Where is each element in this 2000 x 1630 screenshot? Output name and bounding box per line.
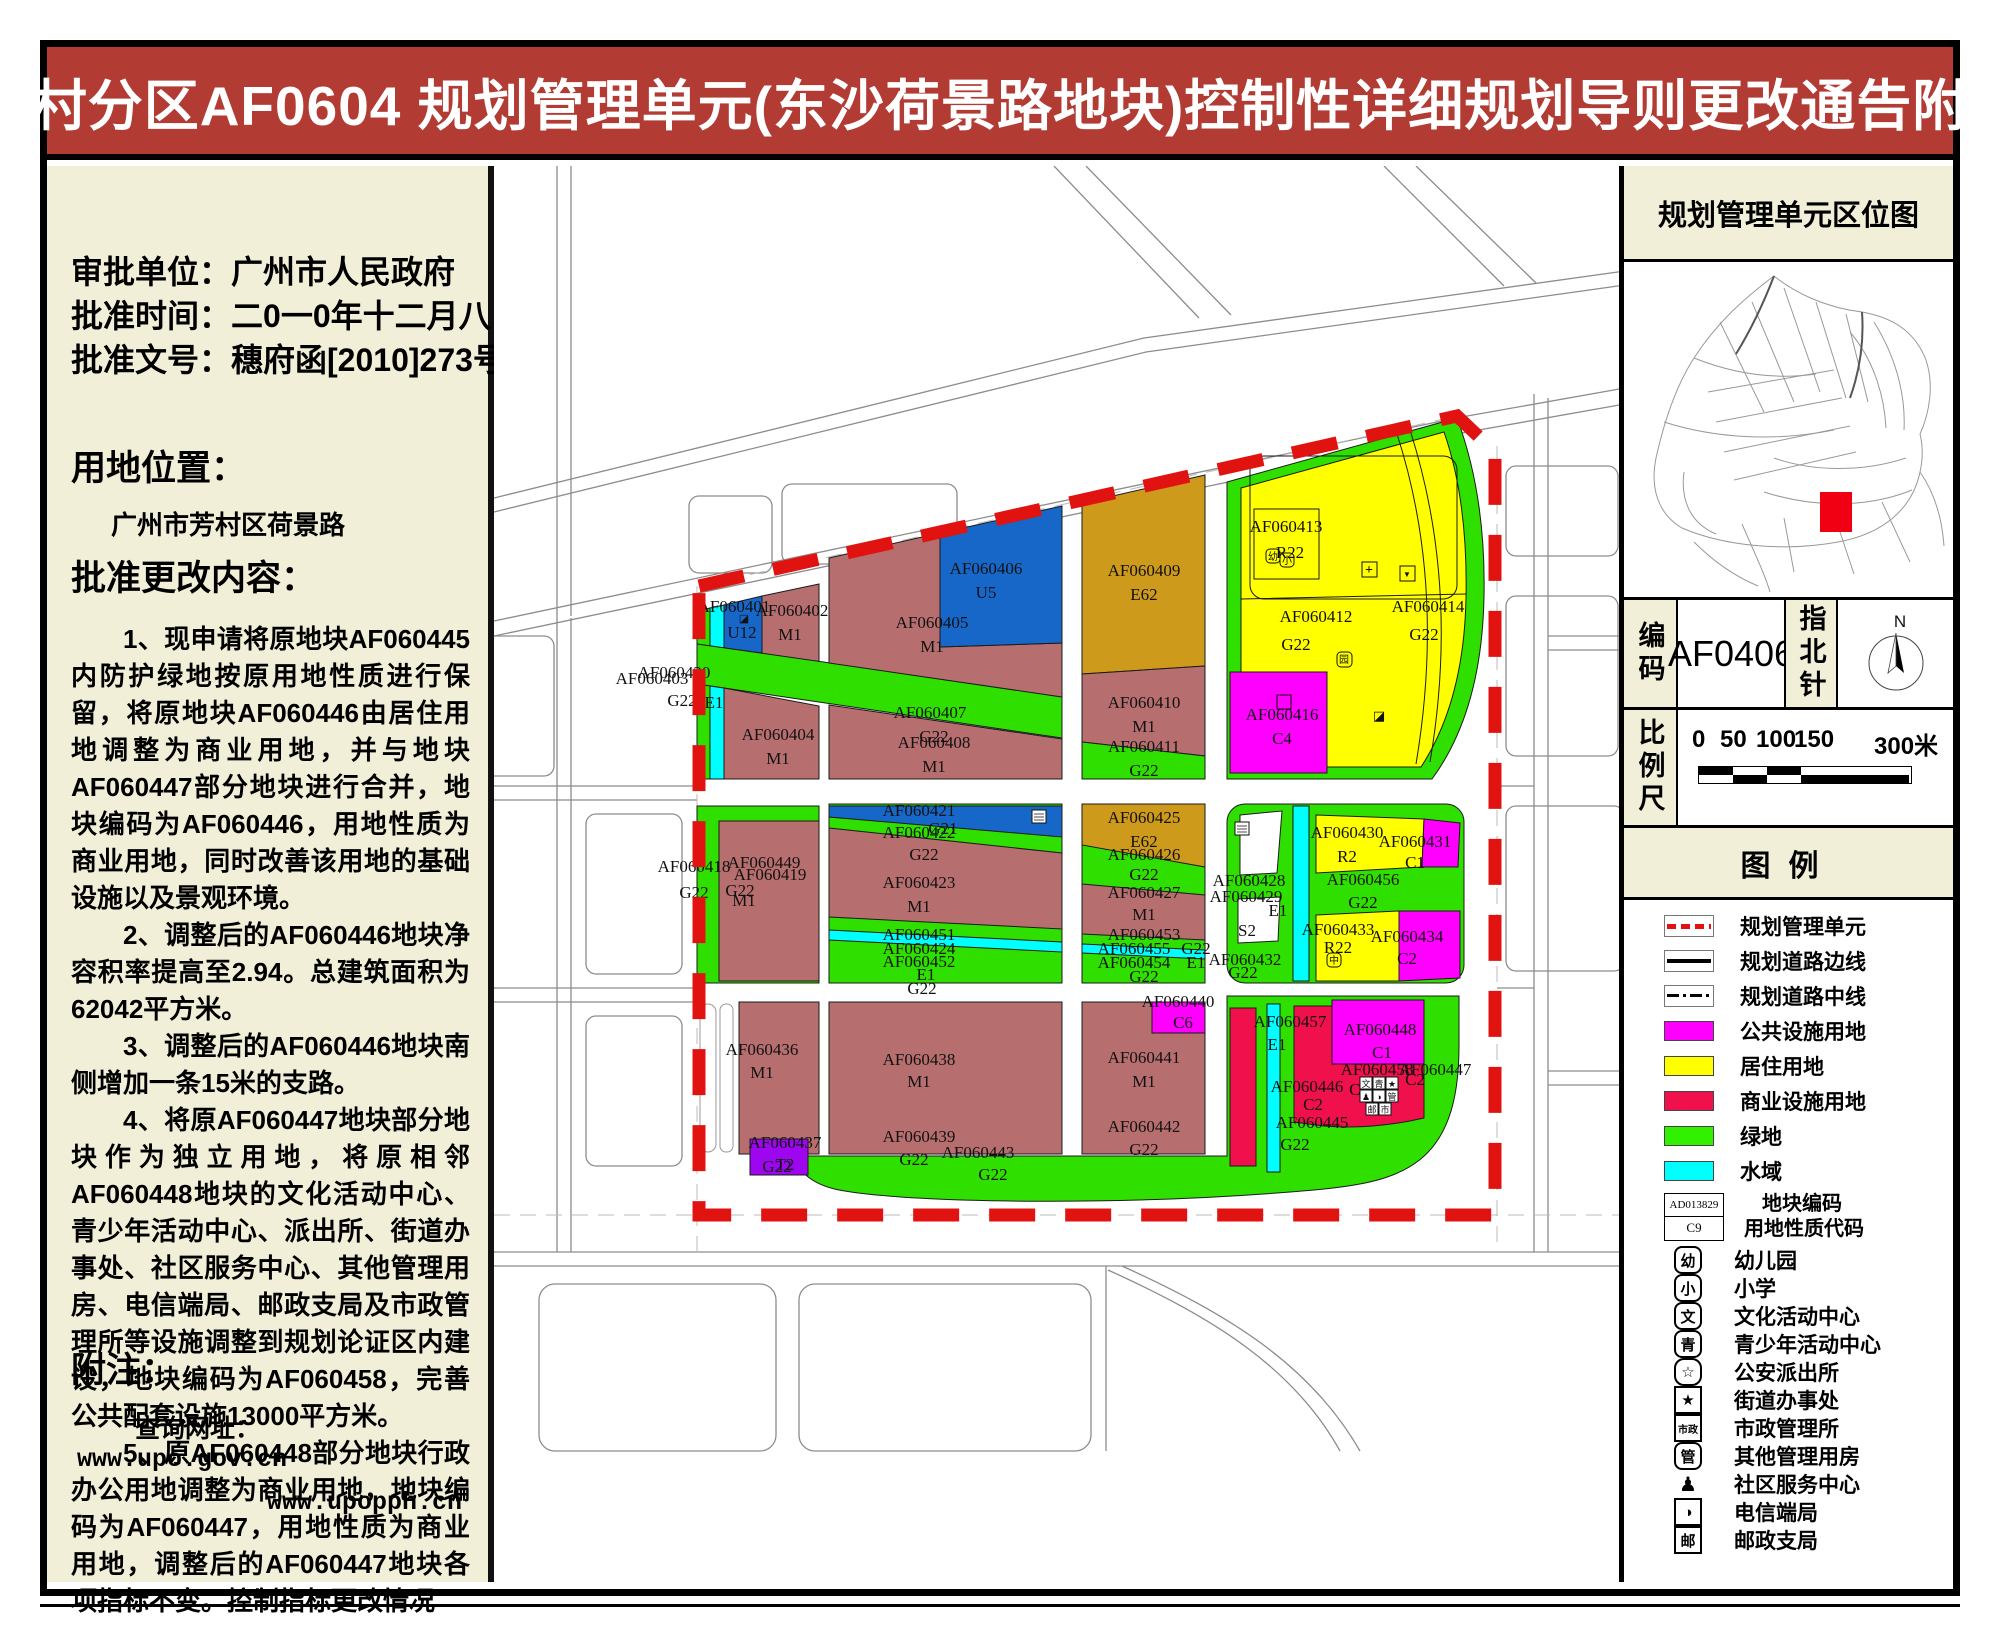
parcel-label: M1	[750, 1063, 774, 1082]
sheet-bottom-rule	[40, 1604, 1960, 1607]
parcel-label: G22	[1280, 1135, 1309, 1154]
parcel-label: AF060411	[1108, 737, 1180, 756]
legend-item: 规划管理单元	[1664, 908, 1953, 943]
legend-item-label: 电信端局	[1734, 1497, 1818, 1527]
query-url[interactable]: www.upo.gov.cn	[77, 1445, 287, 1474]
note-title: 附注：	[71, 1342, 470, 1393]
approval-label: 批准时间：	[71, 298, 231, 334]
facility-legend-icon: 邮	[1674, 1526, 1702, 1554]
legend-item-label: 小学	[1734, 1273, 1776, 1303]
legend-item-label: 其他管理用房	[1734, 1441, 1860, 1471]
parcel-label: AF060421	[883, 801, 956, 820]
parcel-label: AF060440	[1142, 992, 1215, 1011]
facility-legend-icon: 管	[1674, 1442, 1702, 1470]
legend-item: 规划道路边线	[1664, 943, 1953, 978]
parcel-label: AF060408	[898, 733, 971, 752]
parcel-label: M1	[922, 757, 946, 776]
info-panel: 审批单位：广州市人民政府 批准时间：二0一0年十二月八日 批准文号：穗府函[20…	[47, 166, 494, 1582]
legend-item-label: 地块编码	[1762, 1192, 1864, 1217]
scale-bar: 0 50 100 150 300米	[1678, 710, 1953, 825]
youth-center-icon: 中	[1327, 953, 1341, 967]
parcel-label: G22	[1129, 967, 1158, 986]
primary-school-icon: 小	[1280, 553, 1294, 567]
svg-text:小: 小	[1282, 555, 1292, 567]
scale-tick: 300米	[1874, 726, 1938, 761]
legend-line-sample	[1664, 915, 1714, 937]
note-block: 附注： 查询网址：www.upo.gov.cn www.upopph.cn	[71, 1342, 470, 1517]
legend-item: 商业设施用地	[1664, 1083, 1953, 1118]
parcel-label: M1	[1132, 717, 1156, 736]
legend-item: 规划道路中线	[1664, 978, 1953, 1013]
legend-item: 公共设施用地	[1664, 1013, 1953, 1048]
locator-highlight	[1820, 492, 1852, 532]
legend-item: ★ 街道办事处	[1664, 1386, 1953, 1414]
legend-item-label: 商业设施用地	[1740, 1086, 1866, 1116]
parcel-label: G22	[1281, 635, 1310, 654]
sheet-frame: 芳村分区AF0604 规划管理单元(东沙荷景路地块)控制性详细规划导则更改通告附…	[40, 40, 1960, 1596]
legend-item: 绿地	[1664, 1118, 1953, 1153]
parcel-label: AF060457	[1254, 1012, 1327, 1031]
parcel-label: AF060403	[616, 669, 689, 688]
query-url[interactable]: www.upopph.cn	[267, 1488, 462, 1517]
facility-legend-icon: ★	[1674, 1386, 1702, 1414]
parcel-label: AF060433	[1302, 920, 1375, 939]
legend-item-label: 公共设施用地	[1740, 1016, 1866, 1046]
title-bar: 芳村分区AF0604 规划管理单元(东沙荷景路地块)控制性详细规划导则更改通告附…	[47, 47, 1953, 160]
legend-item: 居住用地	[1664, 1048, 1953, 1083]
legend-title: 图例	[1624, 828, 1953, 900]
legend-title-text: 图例	[1741, 841, 1837, 885]
parcel-label: S2	[1238, 921, 1256, 940]
legend-color-swatch	[1664, 1161, 1714, 1181]
locator-title-text: 规划管理单元区位图	[1658, 192, 1919, 234]
parcel-label: G22	[1129, 1140, 1158, 1159]
parcel-label: AF060416	[1246, 705, 1319, 724]
parcel-label: G22	[909, 845, 938, 864]
parcel-label: C1	[1405, 853, 1425, 872]
parcel-label: AF060409	[1108, 561, 1181, 580]
parcel-label: AF060407	[894, 703, 967, 722]
parcel-label: G22	[1348, 893, 1377, 912]
parcel-label: M1	[778, 625, 802, 644]
legend-color-swatch	[1664, 1126, 1714, 1146]
facility-legend-icon: 幼	[1674, 1246, 1702, 1274]
parcel-label: C2	[1405, 1070, 1425, 1089]
parcel-label: AF060412	[1280, 607, 1353, 626]
parcel-label: E1	[1268, 1035, 1287, 1054]
parcel-label: AF060446	[1271, 1077, 1344, 1096]
legend-item: 青 青少年活动中心	[1664, 1330, 1953, 1358]
parcel-label: AF060425	[1108, 808, 1181, 827]
parcel-label: G22	[667, 691, 696, 710]
url-label: 查询网址：	[135, 1415, 260, 1443]
parcel-label: M1	[1132, 905, 1156, 924]
parcel-code-labels: 地块编码 用地性质代码	[1744, 1192, 1864, 1242]
legend-item-label: 文化活动中心	[1734, 1301, 1860, 1331]
parcel-label: G22	[907, 979, 936, 998]
legend-item: ☆ 公安派出所	[1664, 1358, 1953, 1386]
parcel-label: AF060410	[1108, 693, 1181, 712]
legend-item-label: 水域	[1740, 1156, 1782, 1186]
legend-item: 邮 邮政支局	[1664, 1526, 1953, 1554]
side-panel: 规划管理单元区位图	[1619, 166, 1953, 1582]
approval-label: 审批单位：	[71, 254, 231, 290]
legend: 规划管理单元 规划道路边线 规划道路中线	[1624, 900, 1953, 1554]
parcel-label: G22	[899, 1150, 928, 1169]
parcel-label: G22	[1129, 865, 1158, 884]
north-arrow-icon: N	[1858, 611, 1934, 697]
legend-item-label: 青少年活动中心	[1734, 1329, 1881, 1359]
scale-tick: 150	[1794, 726, 1834, 754]
parcel-label: AF060406	[950, 559, 1023, 578]
facility-legend-icon: ◑	[1674, 1498, 1702, 1526]
svg-text:邮: 邮	[1367, 1104, 1376, 1115]
parcel-label: C2	[1303, 1095, 1323, 1114]
legend-line-sample	[1664, 950, 1714, 972]
legend-color-swatch	[1664, 1091, 1714, 1111]
scale-tick: 50	[1720, 726, 1747, 754]
legend-item: 文 文化活动中心	[1664, 1302, 1953, 1330]
parcel-label: AF060437	[749, 1133, 822, 1152]
facility-legend-icon: 文	[1674, 1302, 1702, 1330]
code-row: 编码 AF0406 指北针 N	[1624, 600, 1953, 710]
svg-text:文: 文	[1361, 1078, 1370, 1089]
parcel-label: AF060434	[1371, 927, 1444, 946]
parcel-label: AF060441	[1108, 1048, 1181, 1067]
north-letter: N	[1893, 612, 1905, 631]
svg-text:◑: ◑	[1376, 1092, 1381, 1102]
parcel-label: G22	[1409, 625, 1438, 644]
legend-item-label: 邮政支局	[1734, 1525, 1818, 1555]
parcel-label: E1	[705, 693, 724, 712]
parcel-label: AF060426	[1108, 845, 1181, 864]
facility-legend-icon: ☆	[1674, 1358, 1702, 1386]
svg-text:+: +	[1365, 563, 1373, 578]
svg-text:幼: 幼	[1268, 550, 1278, 563]
parcel-code-sample: AD013829 C9	[1664, 1193, 1724, 1241]
parcel-label: C4	[1272, 729, 1292, 748]
parcel-label: AF060405	[896, 613, 969, 632]
svg-text:市: 市	[1380, 1104, 1389, 1115]
parcel-code-sample-use: C9	[1665, 1217, 1723, 1239]
unit-code: AF0406	[1678, 600, 1786, 707]
parcel-label: C6	[1173, 1013, 1193, 1032]
parcel-code-sample-code: AD013829	[1665, 1194, 1723, 1217]
parcel-label: AF060445	[1276, 1113, 1349, 1132]
parcel-label: G22	[1129, 761, 1158, 780]
legend-item: 水域	[1664, 1153, 1953, 1188]
parcel-corner-icon: ◪	[739, 613, 749, 625]
parcel-label: AF060436	[726, 1040, 799, 1059]
legend-item-label: 公安派出所	[1734, 1357, 1839, 1387]
svg-text:♟: ♟	[1362, 1092, 1370, 1102]
zoning-map-svg: AF060420G22 AF060403E1 AF060401U12 AF060…	[494, 166, 1625, 1582]
parcel-label: G21	[928, 819, 957, 838]
locator-map	[1624, 262, 1953, 600]
scale-tick: 100	[1756, 726, 1796, 754]
parcel-label: T2	[776, 1155, 795, 1174]
parcel-label: G22	[978, 1165, 1007, 1184]
parcel-label: AF060456	[1327, 870, 1400, 889]
parcel-label: AF060448	[1344, 1020, 1417, 1039]
legend-item-label: 社区服务中心	[1734, 1469, 1860, 1499]
parcel-label: M1	[920, 637, 944, 656]
parcel-label: E62	[1130, 585, 1157, 604]
parcel-label: AF060430	[1311, 823, 1384, 842]
legend-parcel-code: AD013829 C9 地块编码 用地性质代码	[1664, 1188, 1953, 1246]
approval-value: 二0一0年十二月八日	[231, 298, 523, 334]
parcel-label: AF060431	[1379, 832, 1452, 851]
svg-text:中: 中	[1329, 954, 1339, 967]
legend-item: 管 其他管理用房	[1664, 1442, 1953, 1470]
paragraph: 2、调整后的AF060446地块净容积率提高至2.94。总建筑面积为62042平…	[71, 917, 470, 1028]
parcel-label: AF060438	[883, 1050, 956, 1069]
approval-value: 穗府函[2010]273号	[231, 342, 505, 378]
svg-text:◪: ◪	[1373, 708, 1385, 723]
legend-color-swatch	[1664, 1056, 1714, 1076]
parcel-label: M1	[732, 891, 756, 910]
legend-item-label: 用地性质代码	[1744, 1217, 1864, 1242]
approval-value: 广州市人民政府	[231, 254, 455, 290]
svg-text:园: 园	[1339, 654, 1349, 666]
legend-icon-items: 幼 幼儿园 小 小学 文 文化活动中心 青 青	[1664, 1246, 1953, 1554]
legend-item-label: 街道办事处	[1734, 1385, 1839, 1415]
parcel-label: AF060419	[734, 865, 807, 884]
legend-item-label: 规划道路中线	[1740, 981, 1866, 1011]
legend-item-label: 市政管理所	[1734, 1413, 1839, 1443]
parcel-label: M1	[766, 749, 790, 768]
legend-item: ♟ 社区服务中心	[1664, 1470, 1953, 1498]
svg-text:★: ★	[1388, 1079, 1396, 1089]
parcel-label: U5	[976, 583, 997, 602]
facility-legend-icon: 市政	[1674, 1414, 1702, 1442]
legend-line-sample	[1664, 985, 1714, 1007]
scale-bar-graphic	[1698, 766, 1912, 784]
parcel-label: E1	[1187, 953, 1206, 972]
legend-item: 幼 幼儿园	[1664, 1246, 1953, 1274]
parcel-corner-icon: ◪	[1373, 708, 1385, 723]
legend-line-items: 规划管理单元 规划道路边线 规划道路中线	[1664, 908, 1953, 1013]
svg-text:▼: ▼	[1403, 570, 1411, 579]
legend-item: 市政 市政管理所	[1664, 1414, 1953, 1442]
facility-legend-icon: 小	[1674, 1274, 1702, 1302]
parcel-label: M1	[907, 1072, 931, 1091]
parcel-label: AF060413	[1250, 517, 1323, 536]
legend-item-label: 幼儿园	[1734, 1245, 1797, 1275]
parcel-label: AF060414	[1392, 597, 1465, 616]
building-grid-icon	[1235, 822, 1249, 835]
legend-color-swatch	[1664, 1021, 1714, 1041]
content-title: 批准更改内容：	[71, 550, 470, 601]
legend-item-label: 规划道路边线	[1740, 946, 1866, 976]
location-value: 广州市芳村区荷景路	[111, 505, 470, 542]
location-title: 用地位置：	[71, 440, 470, 491]
location-block: 用地位置： 广州市芳村区荷景路	[71, 440, 470, 542]
parcel-label: AF060402	[756, 601, 829, 620]
svg-text:青: 青	[1374, 1078, 1383, 1089]
parcel-label: E1	[1269, 901, 1288, 920]
parcel-label: C2	[1397, 949, 1417, 968]
compass-label: 指北针	[1786, 600, 1838, 707]
page: 芳村分区AF0604 规划管理单元(东沙荷景路地块)控制性详细规划导则更改通告附…	[0, 0, 2000, 1630]
facility-legend-icon: ♟	[1674, 1470, 1702, 1498]
legend-item-label: 规划管理单元	[1740, 911, 1866, 941]
scale-row: 比例尺 0 50 100 150 300米	[1624, 710, 1953, 828]
legend-item: 小 小学	[1664, 1274, 1953, 1302]
zoning-map: AF060420G22 AF060403E1 AF060401U12 AF060…	[494, 166, 1625, 1582]
locator-map-svg	[1624, 262, 1953, 597]
approval-label: 批准文号：	[71, 342, 231, 378]
parcel-label: U12	[727, 623, 756, 642]
locator-title: 规划管理单元区位图	[1624, 166, 1953, 262]
parcel-label: M1	[1132, 1072, 1156, 1091]
approval-block: 审批单位：广州市人民政府 批准时间：二0一0年十二月八日 批准文号：穗府函[20…	[71, 250, 470, 382]
parcel-label: R2	[1337, 847, 1357, 866]
svg-text:◪: ◪	[739, 613, 749, 625]
parcel-label: AF060443	[942, 1143, 1015, 1162]
scale-tick: 0	[1692, 726, 1705, 754]
compass: N	[1838, 600, 1953, 707]
page-title: 芳村分区AF0604 规划管理单元(东沙荷景路地块)控制性详细规划导则更改通告附…	[0, 61, 2000, 141]
parcel-label: M1	[907, 897, 931, 916]
building-grid-icon	[1032, 810, 1046, 823]
parcel-label: AF060404	[742, 725, 815, 744]
parcel-label: AF060442	[1108, 1117, 1181, 1136]
parcel-label: AF060427	[1108, 883, 1181, 902]
parcel-label: G22	[1228, 963, 1257, 982]
facility-legend-icon: 青	[1674, 1330, 1702, 1358]
kindergarten-icon: 幼	[1266, 549, 1280, 563]
legend-swatch-items: 公共设施用地 居住用地 商业设施用地 绿地	[1664, 1013, 1953, 1188]
paragraph: 3、调整后的AF060446地块南侧增加一条15米的支路。	[71, 1028, 470, 1102]
legend-item-label: 绿地	[1740, 1121, 1782, 1151]
scale-label: 比例尺	[1624, 710, 1678, 825]
legend-item-label: 居住用地	[1740, 1051, 1824, 1081]
svg-text:管: 管	[1387, 1091, 1396, 1102]
parcel-label: AF060423	[883, 873, 956, 892]
paragraph: 1、现申请将原地块AF060445内防护绿地按原用地性质进行保留，将原地块AF0…	[71, 621, 470, 917]
legend-item: ◑ 电信端局	[1664, 1498, 1953, 1526]
